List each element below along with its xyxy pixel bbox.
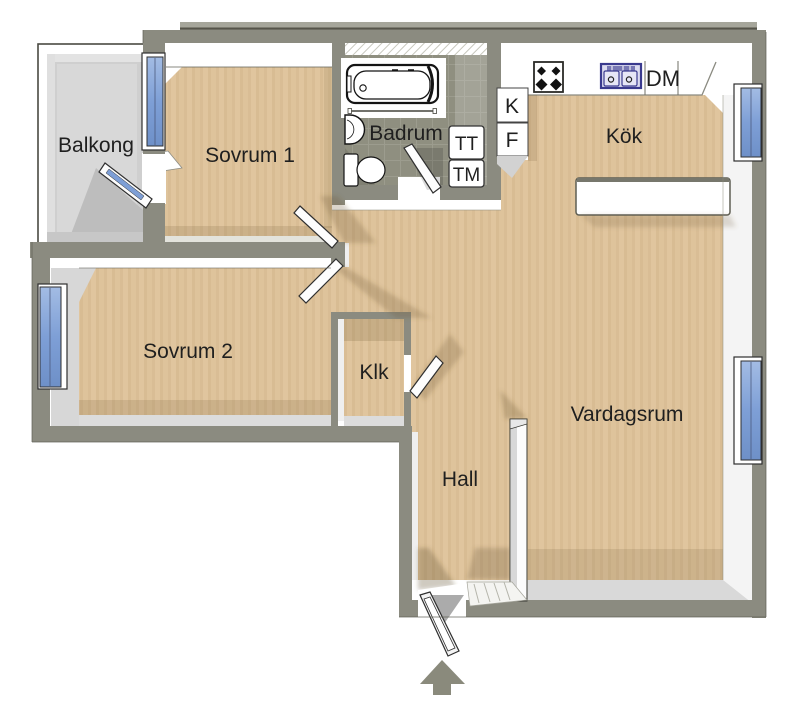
svg-text:Badrum: Badrum xyxy=(369,122,443,145)
svg-text:Vardagsrum: Vardagsrum xyxy=(571,403,684,426)
svg-text:Klk: Klk xyxy=(359,361,389,384)
svg-text:Hall: Hall xyxy=(442,468,478,491)
svg-text:TT: TT xyxy=(455,134,479,155)
svg-text:DM: DM xyxy=(646,66,680,91)
svg-text:K: K xyxy=(505,95,519,118)
svg-text:Kök: Kök xyxy=(606,125,643,148)
svg-text:Sovrum 2: Sovrum 2 xyxy=(143,340,233,363)
svg-text:Balkong: Balkong xyxy=(58,134,134,157)
svg-text:Sovrum 1: Sovrum 1 xyxy=(205,144,295,167)
svg-text:F: F xyxy=(506,129,519,152)
svg-text:TM: TM xyxy=(453,165,480,186)
